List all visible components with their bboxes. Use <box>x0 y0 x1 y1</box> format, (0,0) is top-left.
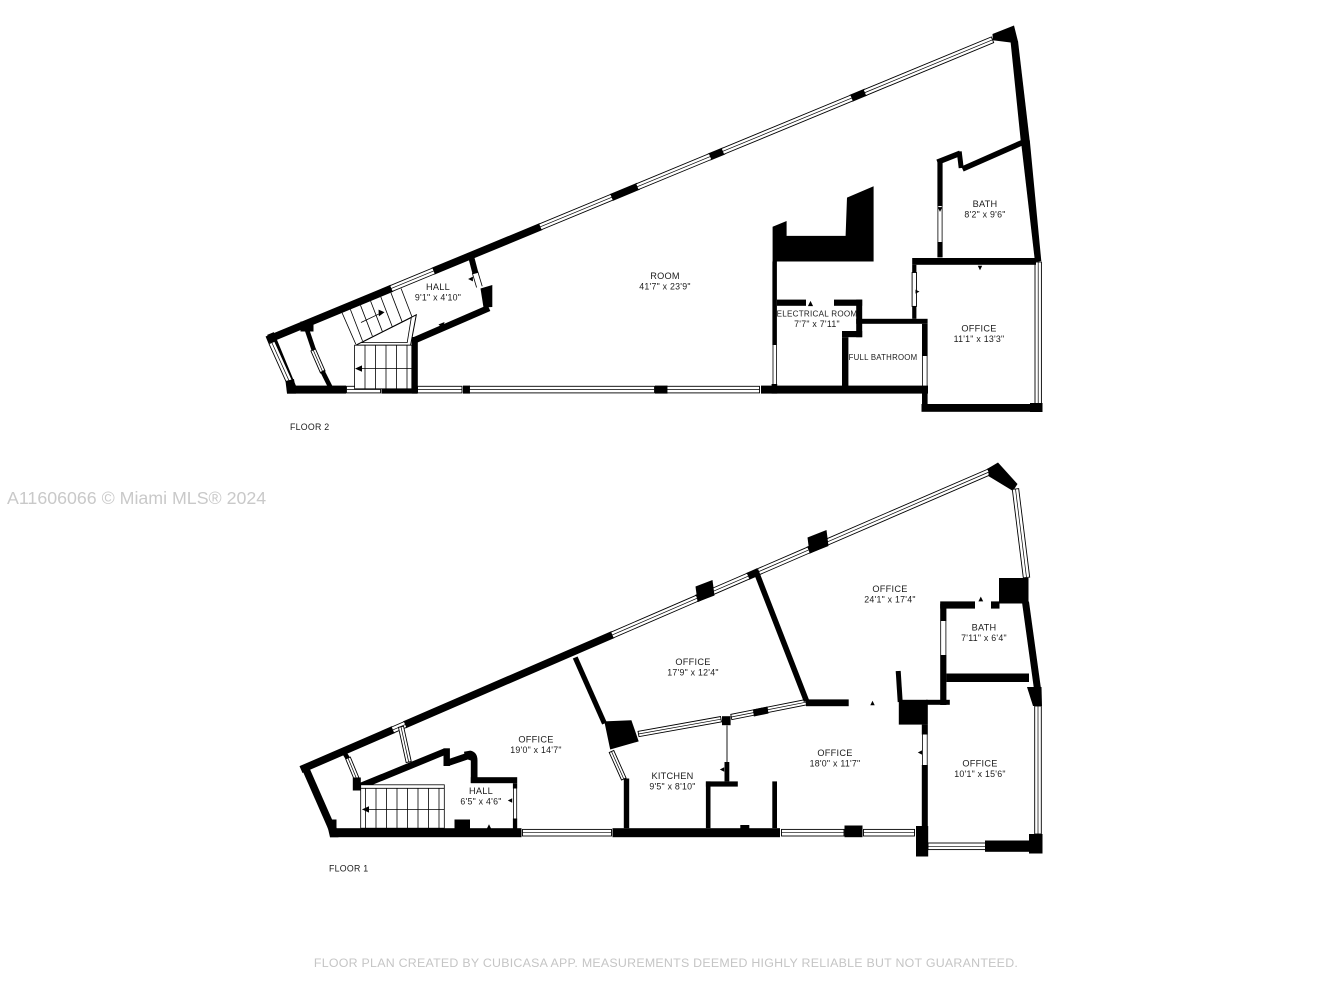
svg-text:9'5" x 8'10": 9'5" x 8'10" <box>649 782 695 792</box>
svg-text:FLOOR 1: FLOOR 1 <box>329 864 368 874</box>
svg-text:17'9" x 12'4": 17'9" x 12'4" <box>667 668 719 678</box>
svg-text:HALL: HALL <box>469 786 493 796</box>
svg-text:BATH: BATH <box>972 623 997 633</box>
svg-text:OFFICE: OFFICE <box>961 324 996 334</box>
svg-text:10'1" x 15'6": 10'1" x 15'6" <box>954 769 1006 779</box>
svg-text:BATH: BATH <box>973 199 998 209</box>
svg-text:11'1" x 13'3": 11'1" x 13'3" <box>954 334 1005 344</box>
svg-text:OFFICE: OFFICE <box>518 735 553 745</box>
svg-text:7'7" x 7'11": 7'7" x 7'11" <box>794 319 840 329</box>
svg-text:19'0" x 14'7": 19'0" x 14'7" <box>510 745 562 755</box>
svg-text:A11606066 © Miami MLS® 2024: A11606066 © Miami MLS® 2024 <box>7 488 266 508</box>
svg-text:OFFICE: OFFICE <box>817 748 852 758</box>
svg-text:FLOOR 2: FLOOR 2 <box>290 422 329 432</box>
svg-text:OFFICE: OFFICE <box>962 759 997 769</box>
svg-text:KITCHEN: KITCHEN <box>651 771 693 781</box>
svg-text:41'7" x 23'9": 41'7" x 23'9" <box>639 282 691 292</box>
svg-text:ROOM: ROOM <box>650 271 680 281</box>
svg-text:9'1" x 4'10": 9'1" x 4'10" <box>415 293 461 303</box>
svg-text:FLOOR PLAN CREATED BY CUBICASA: FLOOR PLAN CREATED BY CUBICASA APP. MEAS… <box>314 956 1018 970</box>
svg-text:ELECTRICAL ROOM: ELECTRICAL ROOM <box>777 310 858 319</box>
svg-text:24'1" x 17'4": 24'1" x 17'4" <box>864 595 916 605</box>
svg-text:8'2" x 9'6": 8'2" x 9'6" <box>964 210 1005 220</box>
svg-text:7'11" x 6'4": 7'11" x 6'4" <box>961 633 1007 643</box>
svg-text:OFFICE: OFFICE <box>675 657 710 667</box>
svg-text:HALL: HALL <box>426 282 450 292</box>
svg-text:OFFICE: OFFICE <box>872 584 907 594</box>
svg-text:FULL BATHROOM: FULL BATHROOM <box>849 353 918 362</box>
svg-text:6'5" x 4'6": 6'5" x 4'6" <box>460 797 501 807</box>
svg-text:18'0" x 11'7": 18'0" x 11'7" <box>810 759 861 769</box>
